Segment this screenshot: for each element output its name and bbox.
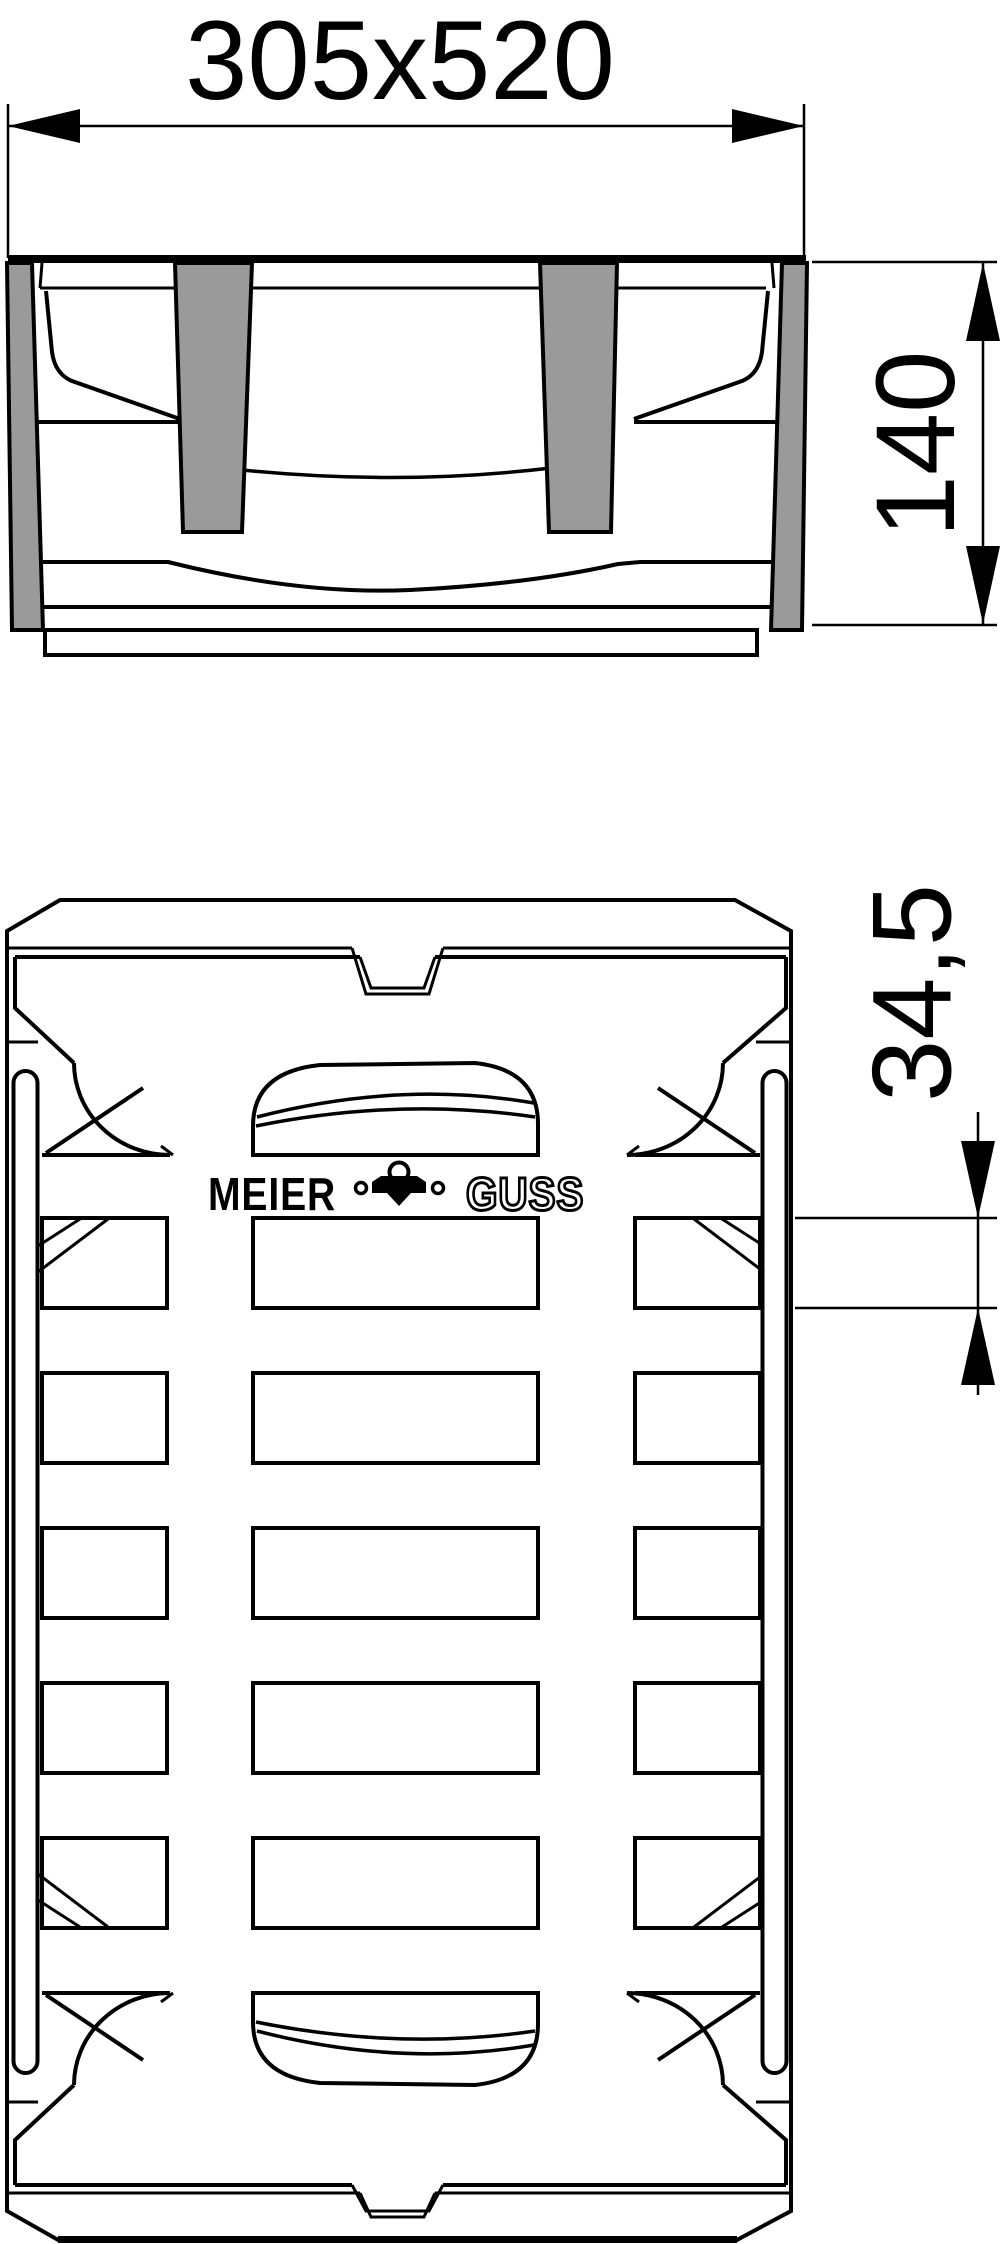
slot-row4-right xyxy=(635,1683,760,1773)
tray-right-corner xyxy=(772,263,774,288)
logo-left-dot xyxy=(356,1183,367,1194)
left-leg xyxy=(175,263,252,532)
right-leg xyxy=(540,263,617,532)
tray-right-wall xyxy=(634,291,768,419)
slot-row4-center xyxy=(253,1683,538,1773)
technical-drawing-page: 305x520 140 34,5 MEIER GUSS xyxy=(0,0,1000,2244)
slot-row4-left xyxy=(42,1683,167,1773)
tray-left-wall xyxy=(46,291,180,419)
front-view xyxy=(7,255,807,655)
logo-banner xyxy=(372,1176,426,1206)
arrow-left-icon xyxy=(8,109,80,143)
arrow-down-icon xyxy=(966,546,1000,624)
logo-right-dot xyxy=(433,1183,444,1194)
plan-view xyxy=(7,900,791,2243)
brand-meier-label: MEIER xyxy=(208,1171,336,1217)
hatch-row1-right xyxy=(694,1219,764,1272)
arrow-up-icon xyxy=(961,1308,995,1385)
plan-top-notch-inner xyxy=(360,957,435,988)
lid-corner-bottom-right xyxy=(723,2085,786,2185)
dim-slot-height xyxy=(795,1112,997,1395)
lid-corner-top-right xyxy=(723,957,786,1063)
slot-row1-center xyxy=(253,1218,538,1308)
hatch-row1-left xyxy=(38,1219,108,1272)
slot-row2-center xyxy=(253,1373,538,1463)
top-surface-bar xyxy=(8,255,806,263)
slot-row2-left xyxy=(42,1373,167,1463)
slot-grid xyxy=(42,1218,760,1928)
brand-guss-label: GUSS xyxy=(466,1171,584,1217)
left-rail-channel xyxy=(14,1071,38,2073)
dim-width xyxy=(8,104,804,262)
tray-left-corner xyxy=(40,263,42,288)
slot-row3-center xyxy=(253,1528,538,1618)
dim-slot-height-label: 34,5 xyxy=(863,841,963,1146)
dim-width-label: 305x520 xyxy=(130,6,670,116)
dim-height-label: 140 xyxy=(866,294,966,594)
flange-box xyxy=(45,630,757,655)
hatch-row5-left xyxy=(38,1874,108,1927)
arrow-down-icon xyxy=(961,1141,995,1218)
hatch-row5-right xyxy=(694,1874,764,1927)
slot-row5-center xyxy=(253,1838,538,1928)
arrow-up-icon xyxy=(966,263,1000,341)
plan-bottom-notch-inner xyxy=(360,2193,435,2217)
bottom-dome-arc-2 xyxy=(256,2022,535,2039)
outer-bowl-curve xyxy=(43,562,771,591)
gusset-diag-top-left xyxy=(46,1088,143,1153)
gusset-diag-bottom-left xyxy=(46,1995,143,2060)
lid-corner-bottom-left xyxy=(15,2085,74,2185)
slot-row2-right xyxy=(635,1373,760,1463)
meierguss-logo-icon xyxy=(356,1163,444,1207)
slot-row3-right xyxy=(635,1528,760,1618)
drawing-canvas xyxy=(0,0,1000,2244)
left-sidewall xyxy=(7,263,43,630)
plan-bottom-thick-edge xyxy=(58,2236,737,2243)
gusset-arc-bottom-left xyxy=(74,1993,170,2085)
gusset-arc-top-right xyxy=(627,1063,723,1155)
gusset-arc-top-left xyxy=(74,1063,170,1155)
right-rail-channel xyxy=(763,1071,787,2073)
gusset-ticks xyxy=(161,1146,639,2002)
arrow-right-icon xyxy=(732,109,804,143)
top-dome-arc-2 xyxy=(256,1109,535,1126)
lid-corner-top-left xyxy=(15,957,74,1063)
right-sidewall xyxy=(771,263,807,630)
gusset-arc-bottom-right xyxy=(627,1993,723,2085)
inner-bowl-curve xyxy=(242,468,551,478)
slot-row3-left xyxy=(42,1528,167,1618)
